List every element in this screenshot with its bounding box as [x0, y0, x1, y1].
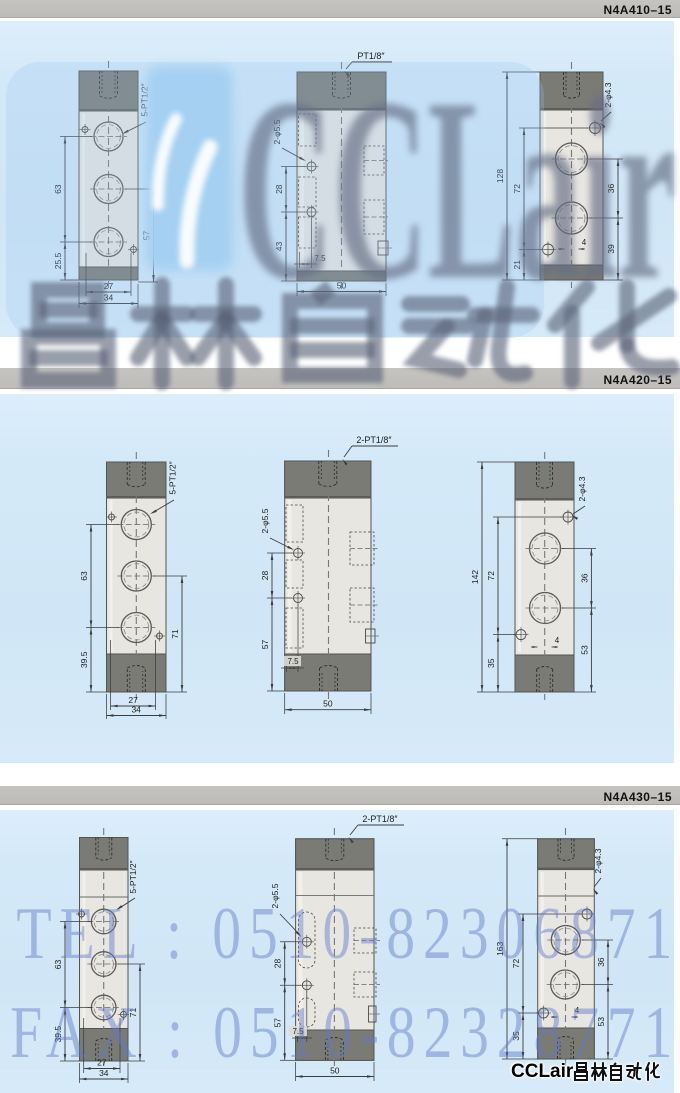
svg-text:2-φ4.3: 2-φ4.3 — [577, 476, 587, 501]
svg-text:63: 63 — [79, 571, 89, 581]
svg-text:2-PT1/8″: 2-PT1/8″ — [356, 435, 392, 445]
svg-text:39.5: 39.5 — [79, 651, 89, 668]
svg-text:2-φ4.3: 2-φ4.3 — [593, 848, 603, 873]
svg-text:142: 142 — [470, 570, 480, 584]
svg-text:4: 4 — [555, 636, 560, 645]
svg-text:7.5: 7.5 — [287, 657, 299, 666]
svg-text:50: 50 — [323, 699, 333, 709]
svg-text:71: 71 — [170, 629, 180, 639]
svg-text:34: 34 — [131, 705, 141, 715]
svg-text:27: 27 — [128, 695, 138, 705]
svg-text:53: 53 — [579, 645, 589, 655]
svg-text:28: 28 — [260, 571, 270, 581]
svg-text:72: 72 — [486, 571, 496, 581]
svg-text:5-PT1/2″: 5-PT1/2″ — [168, 461, 178, 494]
svg-text:36: 36 — [579, 573, 589, 583]
svg-text:TEL : 0510-82306871: TEL : 0510-82306871 — [16, 893, 672, 974]
svg-text:2-PT1/8″: 2-PT1/8″ — [362, 814, 398, 824]
svg-text:2-φ5.5: 2-φ5.5 — [260, 508, 270, 533]
svg-text:57: 57 — [260, 640, 270, 650]
svg-text:35: 35 — [486, 658, 496, 668]
